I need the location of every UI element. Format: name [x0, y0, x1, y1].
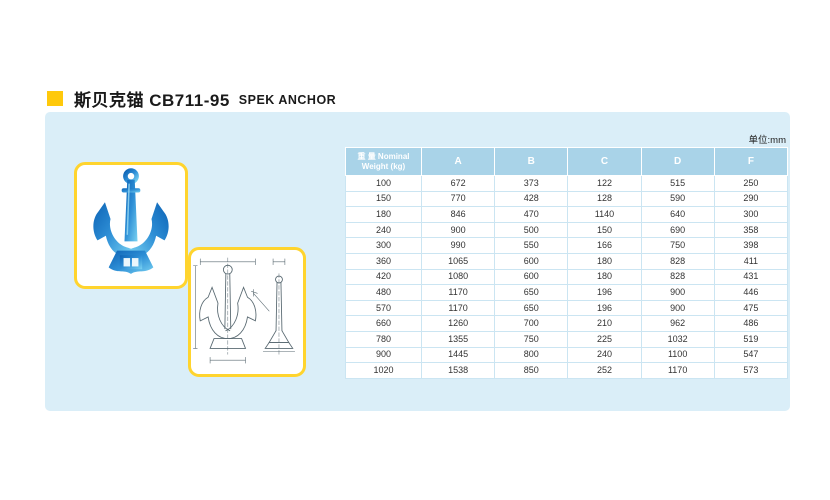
table-row: 150770428128590290 [346, 191, 788, 207]
table-header-row: 重 量 Nominal Weight (kg)ABCDF [346, 148, 788, 176]
table-row: 3601065600180828411 [346, 253, 788, 269]
table-cell: 828 [641, 269, 714, 285]
table-header-cell: D [641, 148, 714, 176]
table-cell: 300 [714, 207, 787, 223]
table-cell: 900 [641, 285, 714, 301]
table-cell: 600 [495, 253, 568, 269]
table-cell: 486 [714, 316, 787, 332]
table-row: 102015388502521170573 [346, 363, 788, 379]
table-cell: 519 [714, 331, 787, 347]
table-cell: 100 [346, 176, 422, 192]
table-cell: 780 [346, 331, 422, 347]
page-title-cn: 斯贝克锚 CB711-95 [74, 86, 230, 111]
table-cell: 570 [346, 300, 422, 316]
table-cell: 398 [714, 238, 787, 254]
table-cell: 846 [422, 207, 495, 223]
table-cell: 373 [495, 176, 568, 192]
table-cell: 411 [714, 253, 787, 269]
anchor-drawing-box [188, 247, 306, 377]
table-row: 6601260700210962486 [346, 316, 788, 332]
table-cell: 750 [641, 238, 714, 254]
table-cell: 225 [568, 331, 641, 347]
table-row: 78013557502251032519 [346, 331, 788, 347]
table-cell: 660 [346, 316, 422, 332]
table-head: 重 量 Nominal Weight (kg)ABCDF [346, 148, 788, 176]
table-cell: 1538 [422, 363, 495, 379]
table-row: 240900500150690358 [346, 222, 788, 238]
table-cell: 166 [568, 238, 641, 254]
spek-anchor-technical-drawing [191, 250, 303, 374]
table-cell: 196 [568, 300, 641, 316]
spek-anchor-photo [77, 165, 185, 286]
table-header-cell: F [714, 148, 787, 176]
table-cell: 428 [495, 191, 568, 207]
table-cell: 196 [568, 285, 641, 301]
table-cell: 358 [714, 222, 787, 238]
table-cell: 962 [641, 316, 714, 332]
table-cell: 446 [714, 285, 787, 301]
table-header-cell: B [495, 148, 568, 176]
table-cell: 1170 [641, 363, 714, 379]
table-cell: 470 [495, 207, 568, 223]
table-cell: 240 [346, 222, 422, 238]
anchor-photo-box [74, 162, 188, 289]
table-cell: 850 [495, 363, 568, 379]
table-row: 4801170650196900446 [346, 285, 788, 301]
content-panel: 单位:mm [45, 112, 790, 411]
table-row: 1808464701140640300 [346, 207, 788, 223]
spec-table: 重 量 Nominal Weight (kg)ABCDF 10067237312… [345, 147, 788, 379]
table-cell: 672 [422, 176, 495, 192]
table-cell: 515 [641, 176, 714, 192]
table-header-cell: A [422, 148, 495, 176]
table-cell: 300 [346, 238, 422, 254]
table-cell: 650 [495, 285, 568, 301]
table-cell: 210 [568, 316, 641, 332]
table-cell: 150 [346, 191, 422, 207]
table-cell: 550 [495, 238, 568, 254]
table-cell: 250 [714, 176, 787, 192]
unit-note: 单位:mm [749, 132, 786, 146]
table-cell: 431 [714, 269, 787, 285]
table-cell: 1445 [422, 347, 495, 363]
table-cell: 650 [495, 300, 568, 316]
table-cell: 547 [714, 347, 787, 363]
table-cell: 1020 [346, 363, 422, 379]
table-cell: 770 [422, 191, 495, 207]
table-cell: 1355 [422, 331, 495, 347]
table-cell: 640 [641, 207, 714, 223]
table-cell: 900 [422, 222, 495, 238]
table-cell: 900 [641, 300, 714, 316]
table-cell: 1100 [641, 347, 714, 363]
table-cell: 690 [641, 222, 714, 238]
table-cell: 475 [714, 300, 787, 316]
table-row: 90014458002401100547 [346, 347, 788, 363]
table-cell: 990 [422, 238, 495, 254]
table-body: 1006723731225152501507704281285902901808… [346, 176, 788, 379]
table-cell: 800 [495, 347, 568, 363]
table-cell: 180 [568, 253, 641, 269]
table-cell: 128 [568, 191, 641, 207]
table-row: 4201080600180828431 [346, 269, 788, 285]
table-cell: 573 [714, 363, 787, 379]
table-cell: 252 [568, 363, 641, 379]
table-cell: 1140 [568, 207, 641, 223]
table-cell: 590 [641, 191, 714, 207]
table-cell: 1032 [641, 331, 714, 347]
table-cell: 480 [346, 285, 422, 301]
table-cell: 828 [641, 253, 714, 269]
table-cell: 122 [568, 176, 641, 192]
table-cell: 700 [495, 316, 568, 332]
table-cell: 240 [568, 347, 641, 363]
table-cell: 750 [495, 331, 568, 347]
table-cell: 1065 [422, 253, 495, 269]
table-cell: 600 [495, 269, 568, 285]
table-cell: 1170 [422, 300, 495, 316]
page-title-en: SPEK ANCHOR [239, 90, 336, 107]
yellow-square-bullet-icon [47, 91, 63, 106]
table-cell: 360 [346, 253, 422, 269]
table-cell: 1170 [422, 285, 495, 301]
table-cell: 1080 [422, 269, 495, 285]
page: { "title": { "cn": "斯贝克锚 CB711-95", "en"… [0, 0, 830, 500]
table-header-cell: C [568, 148, 641, 176]
table-row: 5701170650196900475 [346, 300, 788, 316]
page-title: 斯贝克锚 CB711-95 SPEK ANCHOR [47, 86, 336, 111]
table-row: 100672373122515250 [346, 176, 788, 192]
table-row: 300990550166750398 [346, 238, 788, 254]
table-cell: 1260 [422, 316, 495, 332]
table-cell: 900 [346, 347, 422, 363]
table-cell: 500 [495, 222, 568, 238]
table-header-cell: 重 量 Nominal Weight (kg) [346, 148, 422, 176]
table-cell: 420 [346, 269, 422, 285]
table-cell: 290 [714, 191, 787, 207]
table-cell: 180 [568, 269, 641, 285]
table-cell: 150 [568, 222, 641, 238]
table-cell: 180 [346, 207, 422, 223]
